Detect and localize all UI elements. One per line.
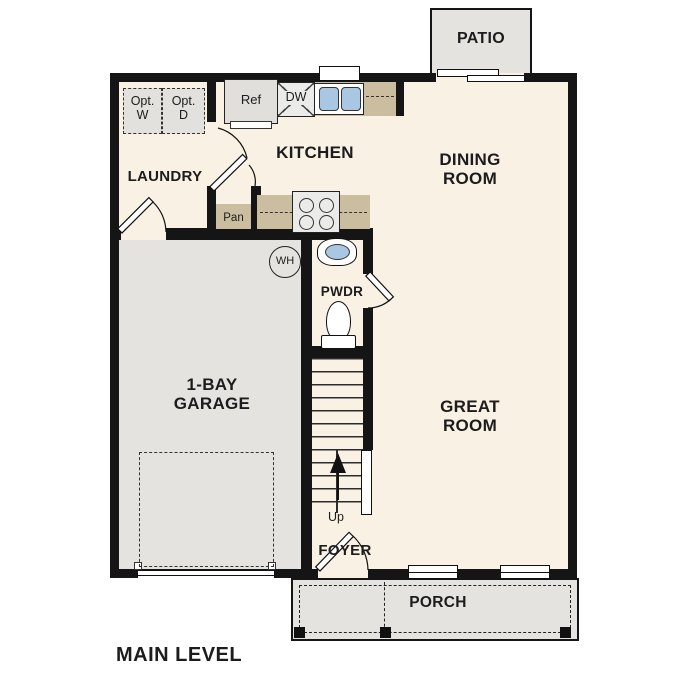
front-door-opening <box>318 567 368 578</box>
kitchen-label: KITCHEN <box>264 143 366 162</box>
porch-post <box>380 627 391 638</box>
patio-label: PATIO <box>432 30 530 48</box>
stove-burner <box>319 198 334 213</box>
porch-post <box>560 627 571 638</box>
wall-kitchen-counter-stub <box>396 80 404 116</box>
stove-burner <box>319 215 334 230</box>
dishwasher: DW <box>277 82 315 117</box>
foyer-label: FOYER <box>314 543 376 560</box>
great-room-label: GREAT ROOM <box>428 397 512 435</box>
wall-pwdr-right-lower <box>363 308 373 450</box>
water-heater: WH <box>269 246 301 278</box>
pantry-box: Pan <box>216 204 251 229</box>
porch-area: PORCH <box>291 578 579 641</box>
toilet-tank <box>321 335 356 349</box>
porch-post <box>294 627 305 638</box>
stairs-up-label: Up <box>320 511 352 525</box>
pwdr-sink-basin <box>325 244 350 260</box>
pantry-label: Pan <box>216 212 251 225</box>
optional-dryer-label: Opt. D <box>163 95 204 123</box>
wall-pantry-left-stub <box>207 186 216 228</box>
kitchen-sink <box>314 83 364 115</box>
wall-laundry-right-stub <box>207 82 216 122</box>
garage-door-dashed-area <box>139 452 274 567</box>
counter-dashed-edge <box>366 96 394 97</box>
dining-room-label: DINING ROOM <box>428 150 512 188</box>
kitchen-window <box>319 66 360 81</box>
plan-title: MAIN LEVEL <box>116 644 276 666</box>
porch-label: PORCH <box>373 594 503 611</box>
optional-dryer-box: Opt. D <box>162 88 205 134</box>
refrigerator: Ref <box>224 79 278 124</box>
sliding-door-panel-inner <box>467 75 525 82</box>
sink-basin-right <box>341 87 361 111</box>
stair-handrail <box>361 450 372 515</box>
stove-cooktop <box>292 191 340 233</box>
floor-plan-canvas: PATIO PORCH DW Ref <box>0 0 687 687</box>
sink-basin-left <box>319 87 339 111</box>
garage-label: 1-BAY GARAGE <box>158 375 266 413</box>
foyer-window-left <box>408 565 458 579</box>
wall-pwdr-right-upper <box>363 240 373 274</box>
foyer-window-right <box>500 565 550 579</box>
window-mullion <box>409 572 457 573</box>
laundry-door-opening <box>121 228 166 240</box>
garage-door-panel <box>138 569 274 576</box>
dishwasher-label: DW <box>283 91 309 105</box>
wall-garage-stairs <box>301 240 312 569</box>
stove-burner <box>299 198 314 213</box>
stair-center-rail <box>336 449 338 513</box>
laundry-label: LAUNDRY <box>122 169 208 186</box>
optional-washer-label: Opt. W <box>124 95 161 123</box>
water-heater-label: WH <box>270 255 300 267</box>
pwdr-label: PWDR <box>314 284 370 299</box>
refrigerator-label: Ref <box>225 93 277 107</box>
optional-washer-box: Opt. W <box>123 88 162 134</box>
stove-burner <box>299 215 314 230</box>
refrigerator-handle <box>230 121 272 129</box>
window-mullion <box>501 572 549 573</box>
